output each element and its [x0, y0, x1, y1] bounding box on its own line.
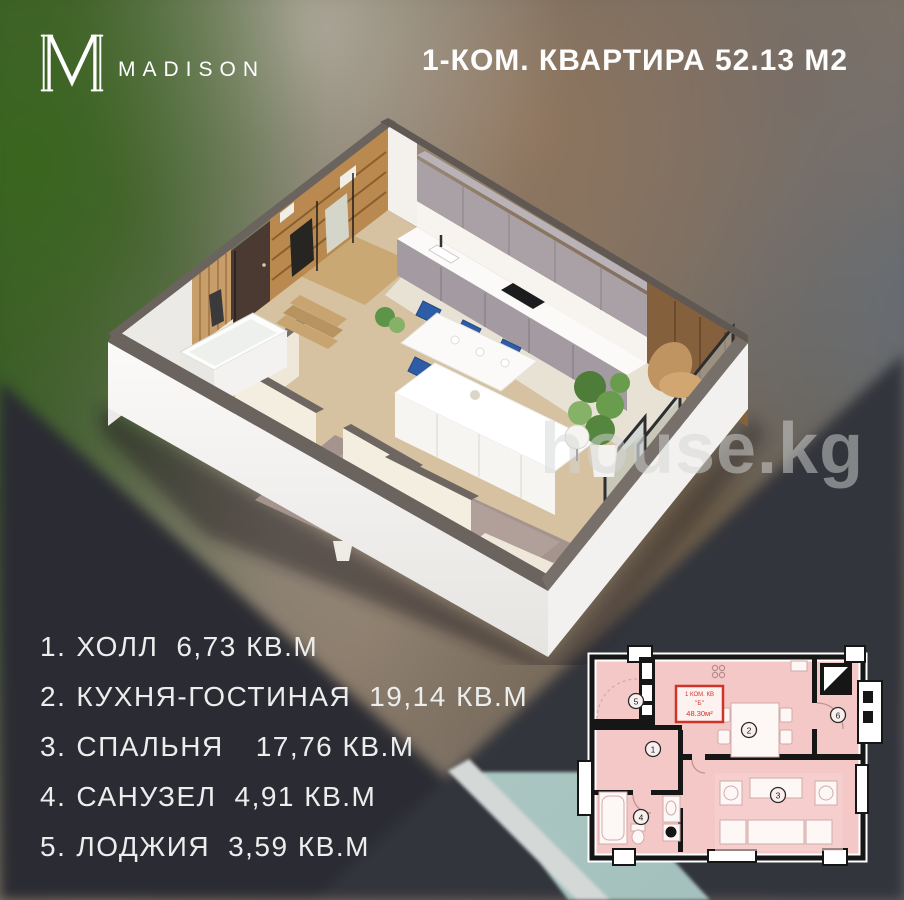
- list-item: 4.САНУЗЕЛ4,91 КВ.М: [40, 772, 528, 822]
- room-number: 4.: [40, 781, 66, 812]
- marker-4: 4: [639, 813, 644, 823]
- apartment-3d-render: [85, 105, 805, 665]
- washer-drum: [666, 827, 677, 838]
- room-number: 2.: [40, 681, 66, 712]
- marker-2: 2: [747, 726, 752, 736]
- room-number: 1.: [40, 631, 66, 662]
- unit-label-line2: "Б": [695, 700, 705, 707]
- brand-name: MADISON: [118, 58, 265, 82]
- room-name: САНУЗЕЛ: [76, 781, 216, 812]
- marker-5: 5: [634, 697, 639, 707]
- marker-3: 3: [776, 791, 781, 801]
- madison-monogram-icon: [38, 28, 106, 98]
- room-area: 3,59 КВ.М: [228, 831, 370, 862]
- floor-plan: 1 КОМ. КВ "Б" 48.30м² 1 2 3 4 5 6: [575, 645, 904, 900]
- unit-label-line3: 48.30м²: [686, 709, 713, 718]
- room-name: КУХНЯ-ГОСТИНАЯ: [76, 681, 351, 712]
- room-name: ЛОДЖИЯ: [76, 831, 210, 862]
- room-name: СПАЛЬНЯ: [76, 731, 223, 762]
- list-item: 2.КУХНЯ-ГОСТИНАЯ19,14 КВ.М: [40, 672, 528, 722]
- watermark: house.kg: [540, 408, 864, 490]
- room-number: 3.: [40, 731, 66, 762]
- room-area: 6,73 КВ.М: [176, 631, 318, 662]
- room-list: 1.ХОЛЛ6,73 КВ.М 2.КУХНЯ-ГОСТИНАЯ19,14 КВ…: [40, 622, 528, 872]
- list-item: 5.ЛОДЖИЯ3,59 КВ.М: [40, 822, 528, 872]
- page-title: 1-КОМ. КВАРТИРА 52.13 М2: [380, 44, 890, 78]
- room-number: 5.: [40, 831, 66, 862]
- room-area: 19,14 КВ.М: [369, 681, 528, 712]
- listing-poster: house.kg MADISON 1-КОМ. КВАРТИРА 52.13 М…: [0, 0, 904, 900]
- marker-6: 6: [836, 711, 841, 721]
- unit-label-line1: 1 КОМ. КВ: [685, 692, 714, 698]
- list-item: 1.ХОЛЛ6,73 КВ.М: [40, 622, 528, 672]
- list-item: 3.СПАЛЬНЯ17,76 КВ.М: [40, 722, 528, 772]
- room-area: 4,91 КВ.М: [235, 781, 377, 812]
- brand-logo: MADISON: [38, 28, 265, 98]
- unit-label: 1 КОМ. КВ "Б" 48.30м²: [676, 686, 723, 722]
- room-area: 17,76 КВ.М: [256, 731, 415, 762]
- room-name: ХОЛЛ: [76, 631, 158, 662]
- toilet: [632, 830, 644, 844]
- marker-1: 1: [651, 745, 656, 755]
